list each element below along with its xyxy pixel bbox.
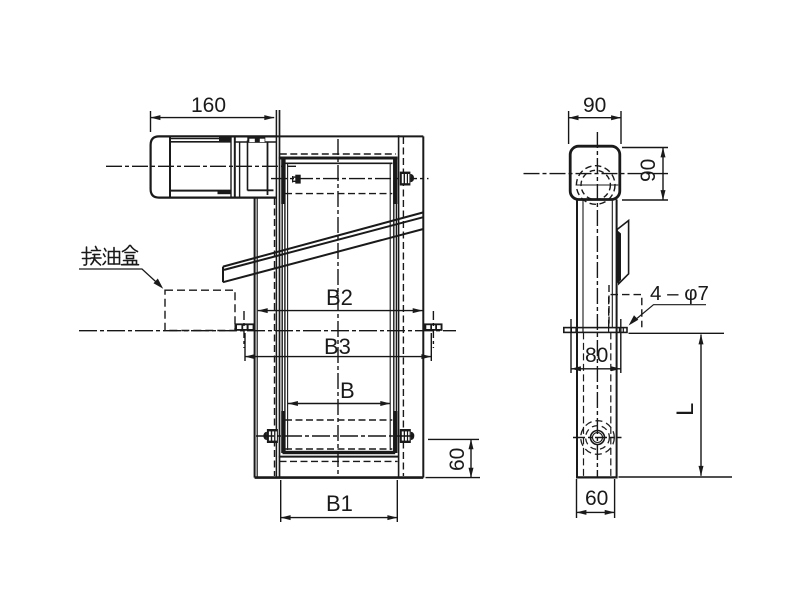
svg-text:80: 80 bbox=[585, 344, 608, 367]
svg-text:L: L bbox=[672, 403, 699, 416]
svg-text:B3: B3 bbox=[324, 334, 351, 359]
svg-text:90: 90 bbox=[637, 159, 660, 182]
svg-text:4 – φ7: 4 – φ7 bbox=[650, 282, 709, 305]
svg-text:160: 160 bbox=[191, 94, 226, 117]
svg-text:B2: B2 bbox=[326, 285, 353, 310]
svg-text:B1: B1 bbox=[326, 491, 353, 516]
svg-text:B: B bbox=[340, 378, 355, 403]
svg-text:90: 90 bbox=[583, 94, 606, 117]
svg-text:60: 60 bbox=[446, 448, 469, 471]
svg-text:60: 60 bbox=[585, 487, 608, 510]
